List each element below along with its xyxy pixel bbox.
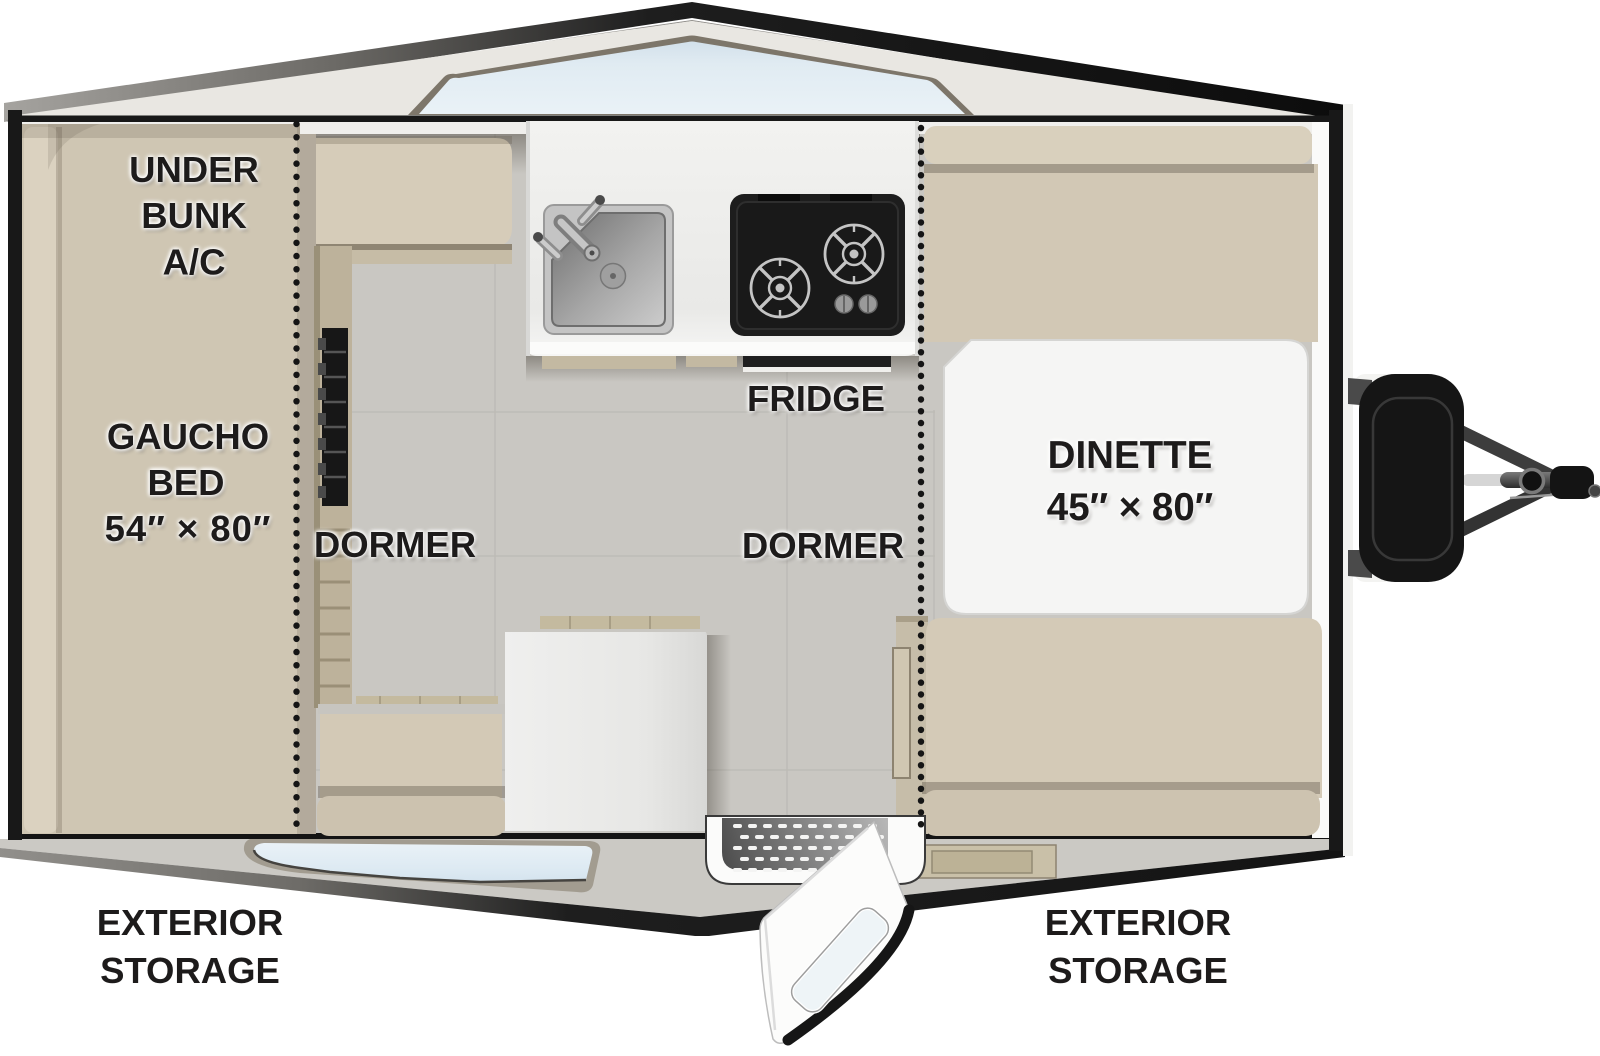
svg-text:54″ × 80″: 54″ × 80″ [105, 508, 272, 549]
svg-text:FRIDGE: FRIDGE [747, 378, 885, 419]
svg-text:STORAGE: STORAGE [1048, 950, 1228, 991]
svg-text:DORMER: DORMER [742, 525, 904, 566]
svg-text:EXTERIOR: EXTERIOR [1045, 902, 1232, 943]
svg-text:BED: BED [147, 462, 224, 503]
svg-text:DORMER: DORMER [314, 524, 476, 565]
svg-text:GAUCHO: GAUCHO [107, 416, 269, 457]
svg-text:STORAGE: STORAGE [100, 950, 280, 991]
svg-text:BUNK: BUNK [141, 195, 247, 236]
svg-text:UNDER: UNDER [129, 149, 259, 190]
svg-text:DINETTE: DINETTE [1048, 434, 1213, 477]
svg-text:A/C: A/C [163, 242, 226, 283]
svg-text:45″ × 80″: 45″ × 80″ [1047, 486, 1213, 529]
svg-text:EXTERIOR: EXTERIOR [97, 902, 284, 943]
